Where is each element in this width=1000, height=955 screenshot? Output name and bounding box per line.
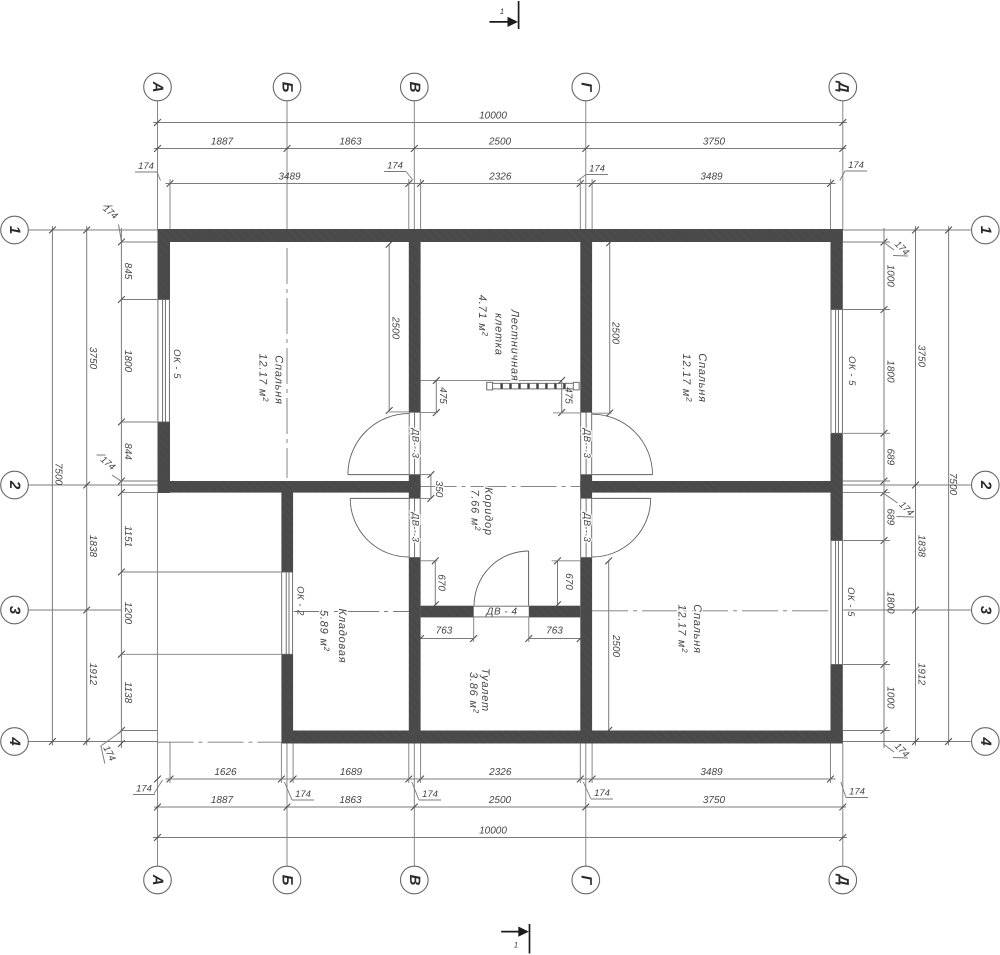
svg-text:2326: 2326 <box>488 767 512 778</box>
svg-text:1151: 1151 <box>122 526 133 548</box>
svg-text:10000: 10000 <box>479 826 507 837</box>
svg-text:4: 4 <box>977 736 994 746</box>
svg-text:844: 844 <box>122 443 133 460</box>
svg-text:689: 689 <box>885 448 896 465</box>
svg-text:7500: 7500 <box>52 463 63 486</box>
svg-text:350: 350 <box>433 481 444 498</box>
svg-text:1838: 1838 <box>87 535 98 558</box>
svg-text:2326: 2326 <box>488 172 512 183</box>
svg-text:клетка: клетка <box>493 313 505 356</box>
svg-text:689: 689 <box>885 509 896 526</box>
svg-text:ОК - 2: ОК - 2 <box>295 586 306 616</box>
svg-text:1863: 1863 <box>339 137 362 148</box>
svg-text:3750: 3750 <box>915 345 926 368</box>
svg-text:Д: Д <box>834 873 851 886</box>
svg-text:Г: Г <box>577 875 594 885</box>
svg-text:3489: 3489 <box>700 767 723 778</box>
svg-text:2500: 2500 <box>609 321 620 345</box>
svg-text:670: 670 <box>563 573 574 590</box>
svg-text:3: 3 <box>977 606 994 615</box>
svg-text:А: А <box>149 81 166 93</box>
svg-text:Лестничная: Лестничная <box>508 308 520 381</box>
svg-text:475: 475 <box>437 387 448 404</box>
svg-text:845: 845 <box>122 263 133 280</box>
svg-text:1912: 1912 <box>87 663 98 686</box>
svg-text:Туалет: Туалет <box>479 668 491 712</box>
svg-text:Б: Б <box>279 82 296 93</box>
svg-text:3.86 м2: 3.86 м2 <box>467 672 481 714</box>
svg-text:2500: 2500 <box>488 137 512 148</box>
svg-text:12.17 м2: 12.17 м2 <box>257 354 271 403</box>
svg-text:4.71 м2: 4.71 м2 <box>476 295 490 337</box>
svg-text:ДВ - 3: ДВ - 3 <box>409 428 420 459</box>
svg-text:1887: 1887 <box>211 137 234 148</box>
svg-text:Г: Г <box>577 82 594 92</box>
svg-text:1800: 1800 <box>122 350 133 373</box>
svg-text:1: 1 <box>500 7 504 16</box>
svg-text:12.17 м2: 12.17 м2 <box>680 354 694 403</box>
svg-text:174: 174 <box>849 787 865 798</box>
svg-text:3750: 3750 <box>703 137 726 148</box>
svg-text:5.89 м2: 5.89 м2 <box>318 610 332 652</box>
svg-text:174: 174 <box>295 789 311 800</box>
svg-text:Спальня: Спальня <box>691 604 703 654</box>
svg-text:1838: 1838 <box>915 535 926 558</box>
svg-text:ДВ - 3: ДВ - 3 <box>581 512 592 543</box>
svg-text:В: В <box>406 875 423 886</box>
svg-text:1: 1 <box>977 226 994 234</box>
svg-text:Спальня: Спальня <box>273 355 285 405</box>
svg-text:1000: 1000 <box>885 265 896 288</box>
svg-text:2500: 2500 <box>610 634 621 658</box>
svg-text:475: 475 <box>563 387 574 404</box>
svg-text:Коридор: Коридор <box>482 487 494 536</box>
svg-text:1000: 1000 <box>885 686 896 709</box>
svg-text:763: 763 <box>436 626 453 637</box>
svg-text:Спальня: Спальня <box>696 353 708 403</box>
svg-text:670: 670 <box>435 574 446 591</box>
svg-text:Кладовая: Кладовая <box>336 609 348 664</box>
svg-text:Б: Б <box>279 875 296 886</box>
svg-text:2: 2 <box>6 480 23 490</box>
svg-text:3750: 3750 <box>703 795 726 806</box>
svg-text:174: 174 <box>422 789 438 800</box>
svg-text:В: В <box>406 82 423 93</box>
svg-text:174: 174 <box>589 164 605 175</box>
svg-text:174: 174 <box>848 160 864 171</box>
svg-text:7.66 м2: 7.66 м2 <box>469 489 483 531</box>
svg-text:174: 174 <box>136 784 152 795</box>
svg-text:Д: Д <box>834 80 851 93</box>
svg-text:1626: 1626 <box>214 767 237 778</box>
svg-text:1800: 1800 <box>885 360 896 383</box>
svg-text:ОК - 5: ОК - 5 <box>846 356 857 386</box>
svg-text:2: 2 <box>977 480 994 490</box>
svg-text:1887: 1887 <box>211 795 234 806</box>
svg-text:1200: 1200 <box>122 602 133 625</box>
svg-text:12.17 м2: 12.17 м2 <box>676 605 690 654</box>
svg-text:3: 3 <box>6 606 23 615</box>
svg-text:2500: 2500 <box>488 795 512 806</box>
svg-text:3489: 3489 <box>700 172 723 183</box>
svg-text:ДВ - 3: ДВ - 3 <box>581 428 592 459</box>
svg-text:1912: 1912 <box>915 663 926 686</box>
svg-text:ДВ - 3: ДВ - 3 <box>409 512 420 543</box>
svg-text:7500: 7500 <box>947 473 958 496</box>
svg-text:ОК - 5: ОК - 5 <box>171 349 182 379</box>
svg-text:А: А <box>149 874 166 886</box>
svg-text:10000: 10000 <box>479 111 507 122</box>
svg-text:174: 174 <box>594 788 610 799</box>
svg-text:2500: 2500 <box>389 316 400 340</box>
svg-text:1138: 1138 <box>122 682 133 704</box>
svg-text:1: 1 <box>514 941 518 950</box>
svg-text:3750: 3750 <box>87 347 98 370</box>
svg-text:763: 763 <box>546 626 563 637</box>
svg-text:4: 4 <box>6 736 23 746</box>
svg-text:3489: 3489 <box>278 172 301 183</box>
svg-text:174: 174 <box>387 161 403 172</box>
svg-text:1: 1 <box>6 226 23 234</box>
svg-text:174: 174 <box>138 161 154 172</box>
svg-text:1800: 1800 <box>885 591 896 614</box>
svg-text:1689: 1689 <box>340 767 363 778</box>
svg-text:ОК - 5: ОК - 5 <box>845 587 856 617</box>
svg-text:ДВ - 4: ДВ - 4 <box>485 606 517 617</box>
svg-text:1863: 1863 <box>339 795 362 806</box>
